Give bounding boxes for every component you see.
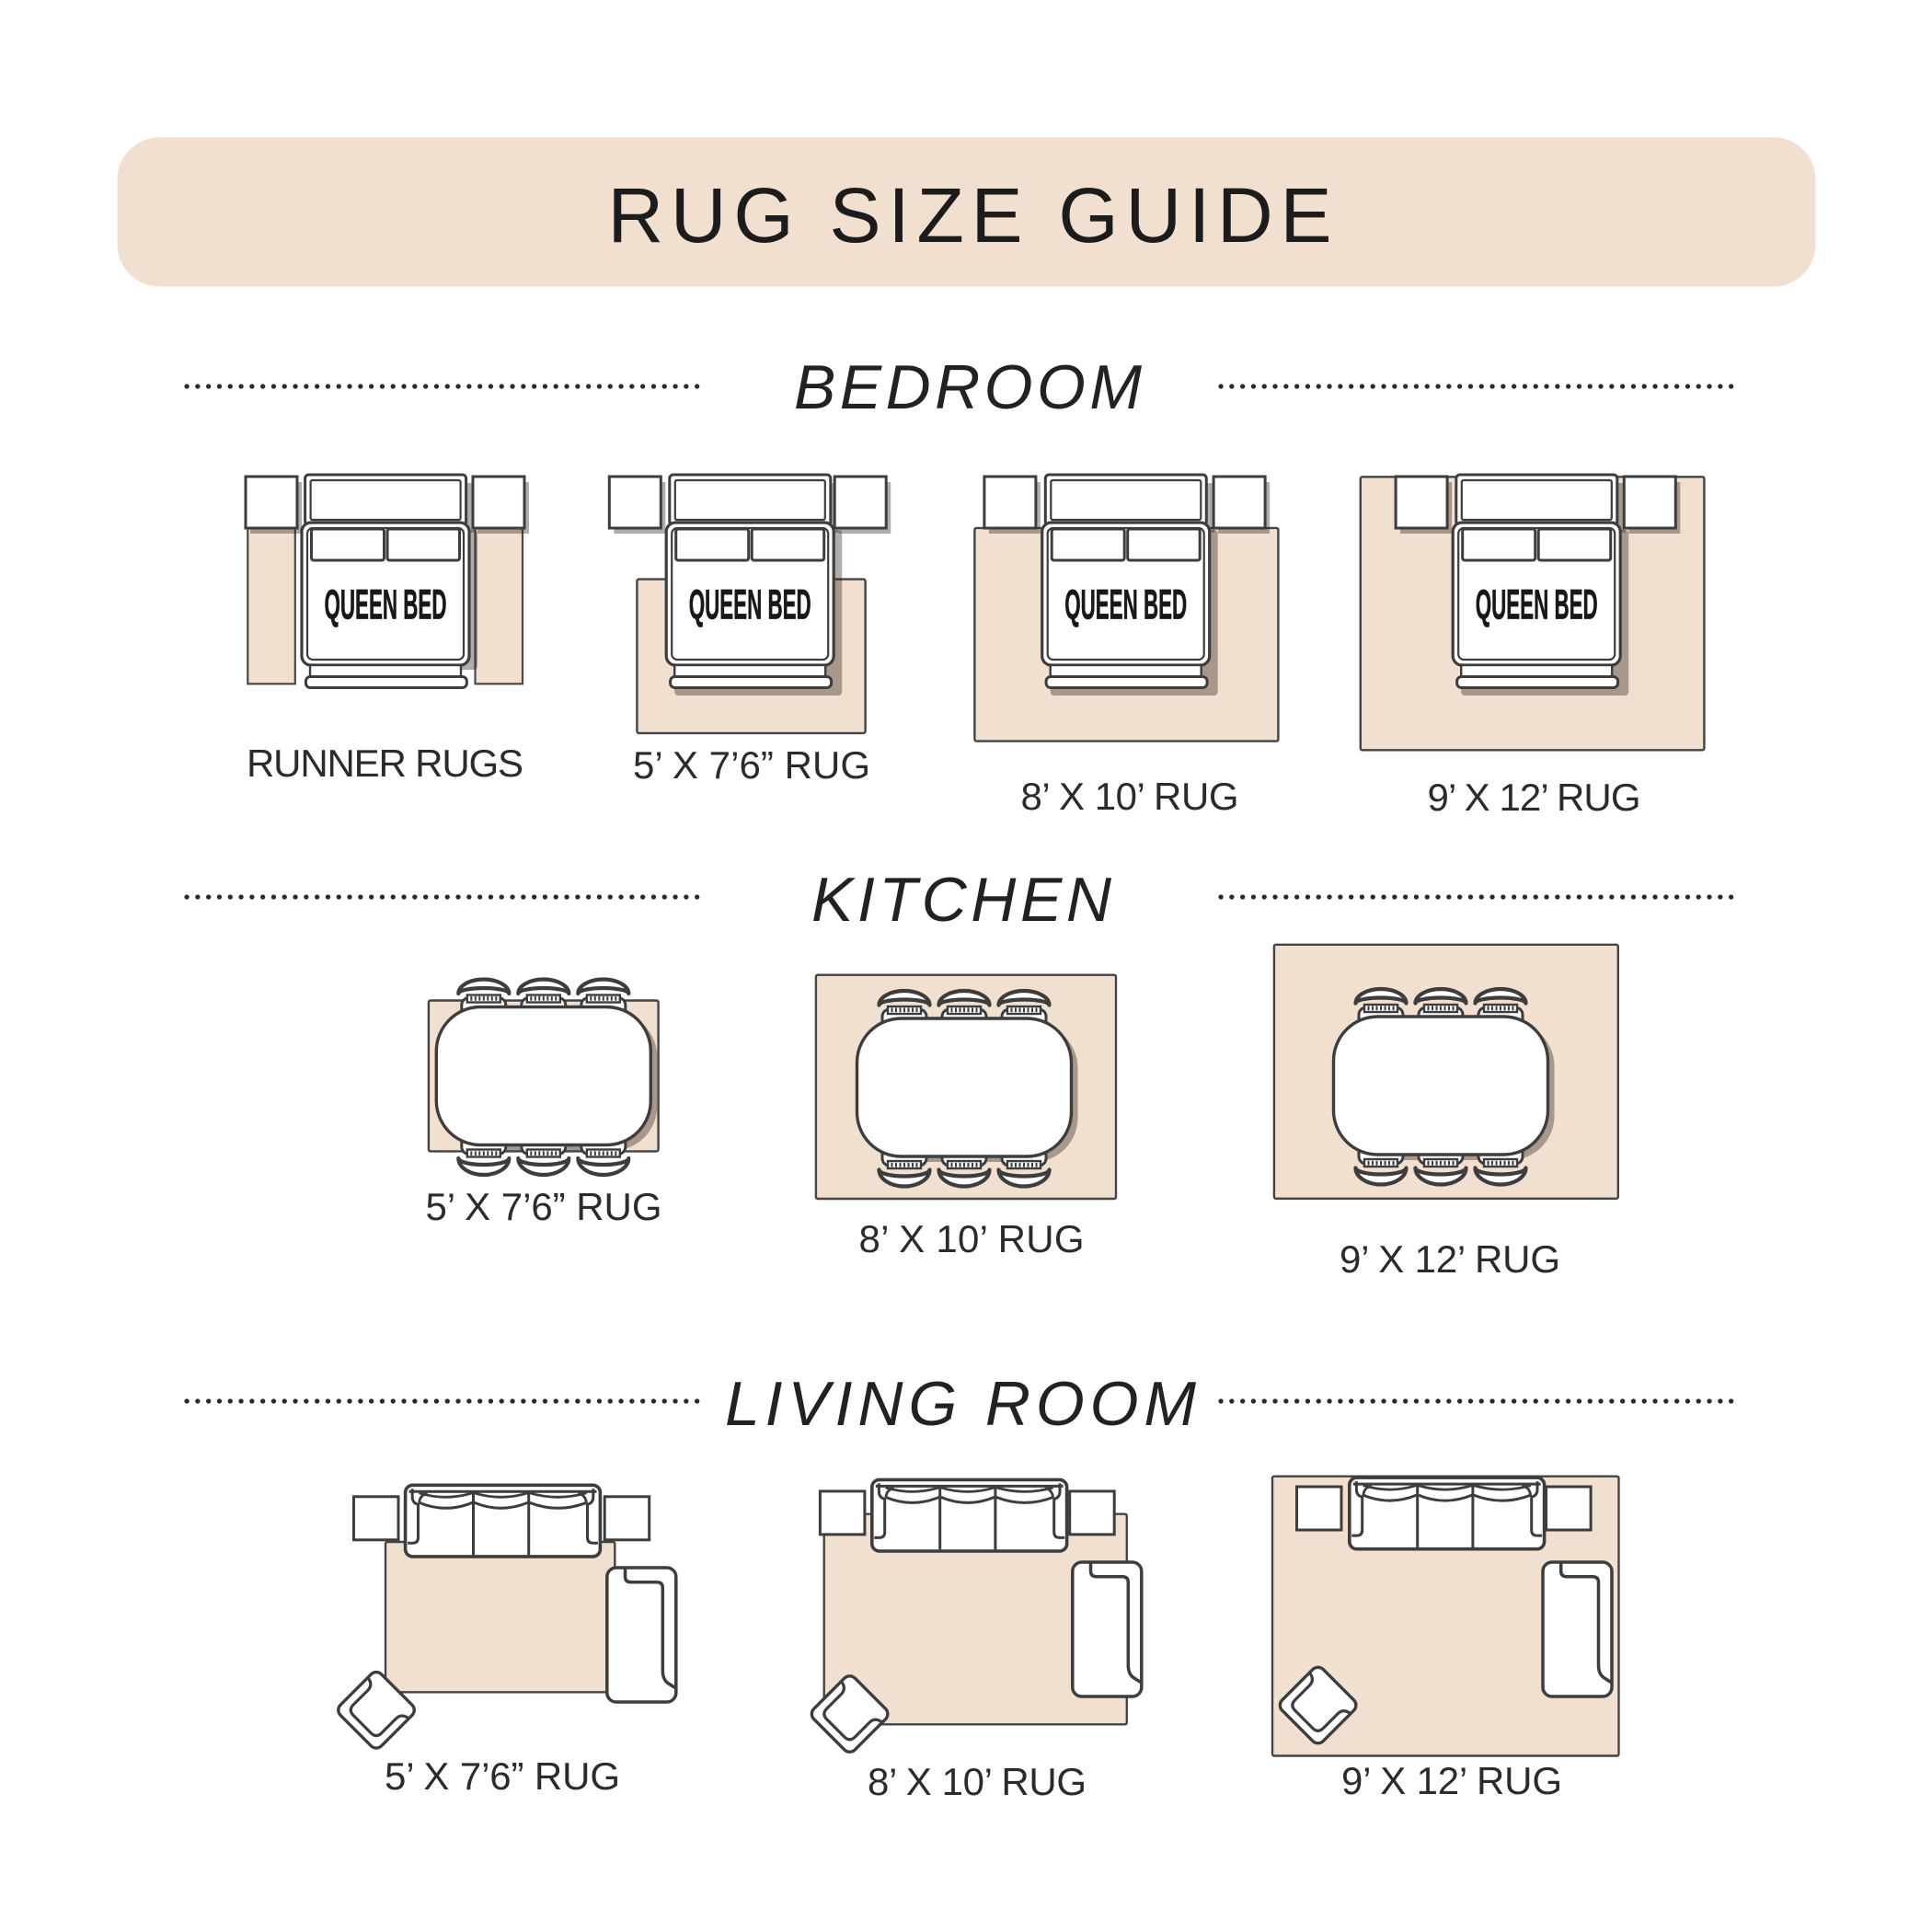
svg-text:9’ X 12’ RUG: 9’ X 12’ RUG (1428, 776, 1641, 819)
svg-text:QUEEN BED: QUEEN BED (1064, 581, 1187, 628)
svg-text:QUEEN BED: QUEEN BED (689, 581, 811, 628)
svg-text:8’ X 10’ RUG: 8’ X 10’ RUG (1021, 775, 1239, 818)
svg-text:9’ X 12’ RUG: 9’ X 12’ RUG (1341, 1759, 1562, 1802)
svg-text:8’ X 10’ RUG: 8’ X 10’ RUG (868, 1760, 1087, 1803)
svg-text:5’ X 7’6” RUG: 5’ X 7’6” RUG (426, 1185, 662, 1228)
svg-text:RUNNER RUGS: RUNNER RUGS (247, 742, 523, 785)
svg-text:5’ X 7’6” RUG: 5’ X 7’6” RUG (633, 743, 870, 787)
svg-text:QUEEN BED: QUEEN BED (1476, 581, 1598, 628)
svg-text:KITCHEN: KITCHEN (811, 865, 1112, 935)
svg-text:QUEEN BED: QUEEN BED (325, 581, 447, 628)
svg-text:5’ X 7’6” RUG: 5’ X 7’6” RUG (385, 1754, 620, 1798)
svg-text:9’ X 12’ RUG: 9’ X 12’ RUG (1340, 1237, 1560, 1281)
svg-text:8’ X 10’ RUG: 8’ X 10’ RUG (859, 1217, 1085, 1260)
svg-text:BEDROOM: BEDROOM (794, 352, 1142, 422)
